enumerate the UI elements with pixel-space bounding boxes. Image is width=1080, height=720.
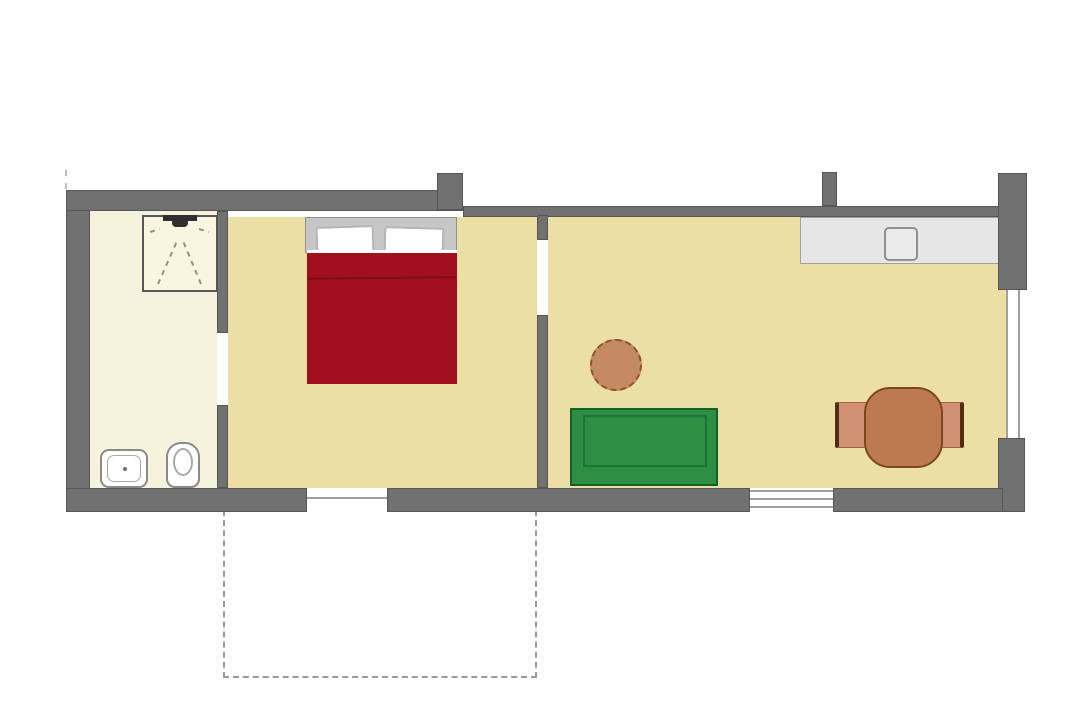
exterior-wall-top-left [66, 190, 463, 211]
window-pane-line [1018, 290, 1020, 438]
window-pane-line [750, 490, 833, 492]
exterior-wall-bottom-middle [387, 488, 750, 512]
window-pane-line [750, 498, 833, 500]
bedroom-terrace-window [307, 488, 387, 512]
window-pane-line [307, 497, 387, 499]
floor-plan [0, 0, 1080, 720]
exterior-wall-bottom-right [833, 488, 1003, 512]
sofa [570, 408, 718, 486]
bed-blanket [307, 253, 457, 384]
partition-bathroom-lower [217, 405, 228, 488]
dining-table [864, 387, 943, 468]
exterior-wall-bottom-left [66, 488, 307, 512]
partition-bathroom-upper [217, 211, 228, 333]
toilet [166, 442, 200, 488]
washbasin-drain [123, 467, 127, 471]
kitchen-sink [884, 227, 918, 261]
washbasin [100, 449, 148, 488]
terrace-outline [223, 510, 537, 678]
window-pane-line [750, 506, 833, 508]
window-pane-line [1006, 290, 1008, 438]
shower-valve-icon [172, 221, 188, 227]
living-side-window [1006, 290, 1022, 438]
sofa-seat [583, 415, 707, 467]
corner-tick-mark [65, 170, 67, 189]
exterior-wall-left [66, 190, 90, 512]
partition-living-upper [537, 215, 548, 240]
living-terrace-window [750, 488, 833, 512]
round-side-table [590, 339, 642, 391]
exterior-wall-stub-left [437, 173, 463, 210]
exterior-wall-stub-middle [822, 172, 837, 206]
partition-living-lower [537, 315, 548, 488]
toilet-bowl [173, 448, 193, 476]
exterior-wall-right-upper [998, 173, 1027, 290]
